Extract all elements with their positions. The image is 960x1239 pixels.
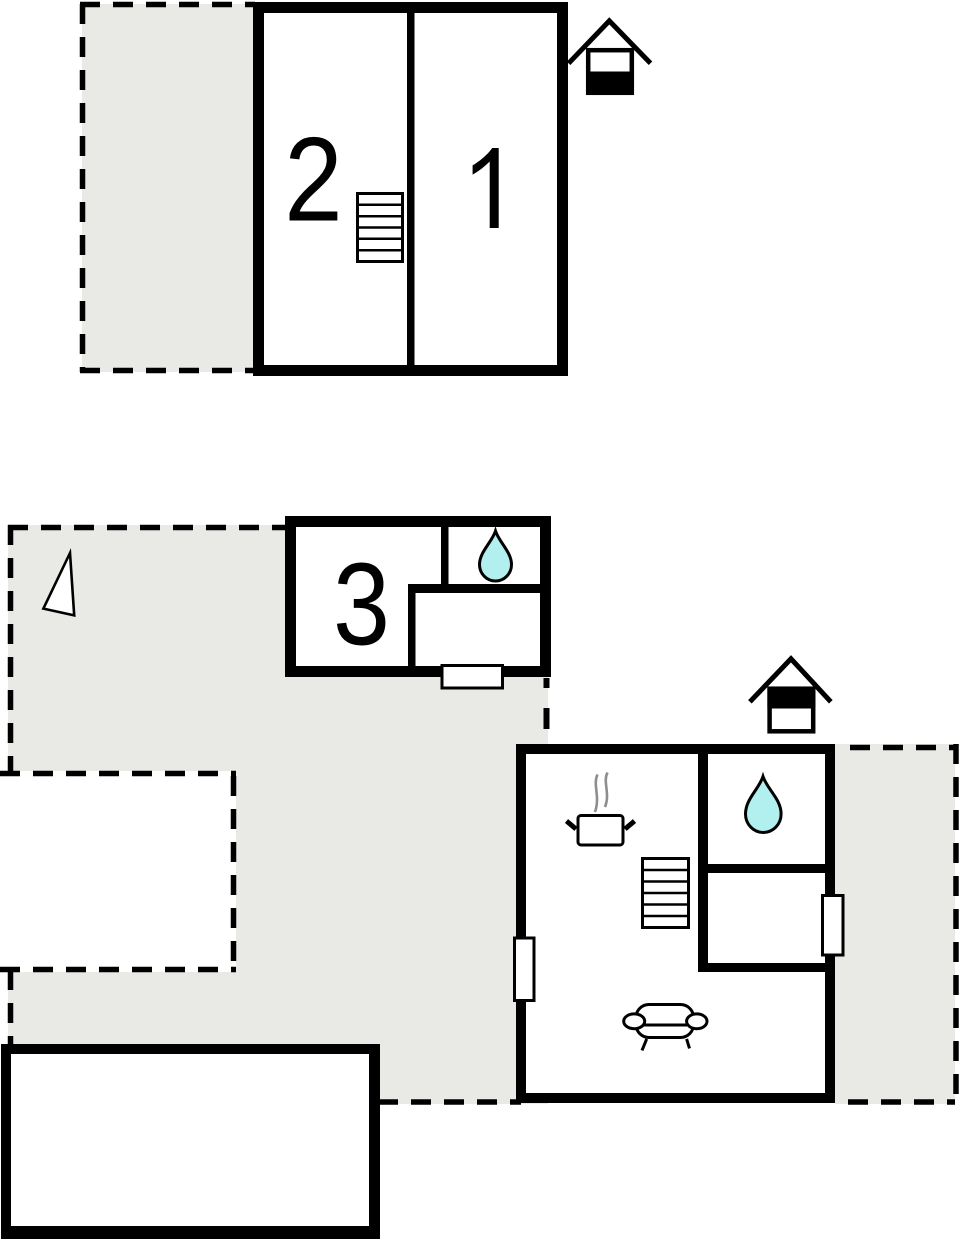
svg-text:2: 2: [284, 112, 342, 246]
svg-text:3: 3: [333, 539, 390, 670]
